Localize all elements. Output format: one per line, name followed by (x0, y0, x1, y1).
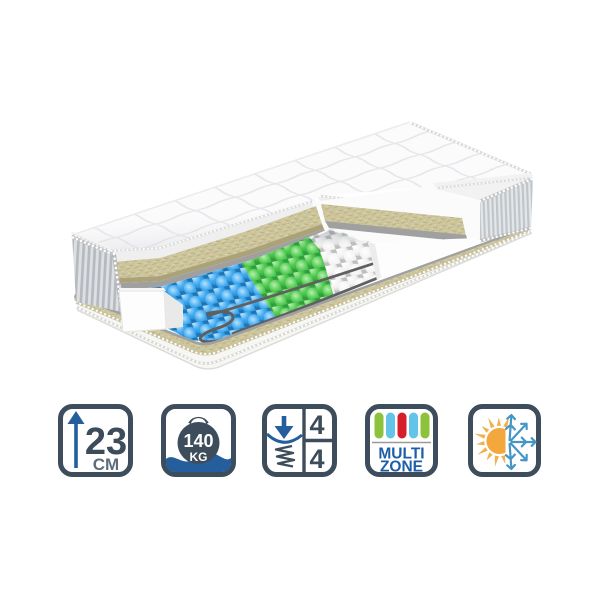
svg-text:4: 4 (309, 444, 324, 474)
svg-text:4: 4 (309, 410, 324, 440)
svg-text:KG: KG (190, 450, 208, 464)
svg-text:CM: CM (93, 455, 119, 474)
svg-text:ZONE: ZONE (380, 459, 423, 476)
svg-text:140: 140 (183, 431, 213, 451)
